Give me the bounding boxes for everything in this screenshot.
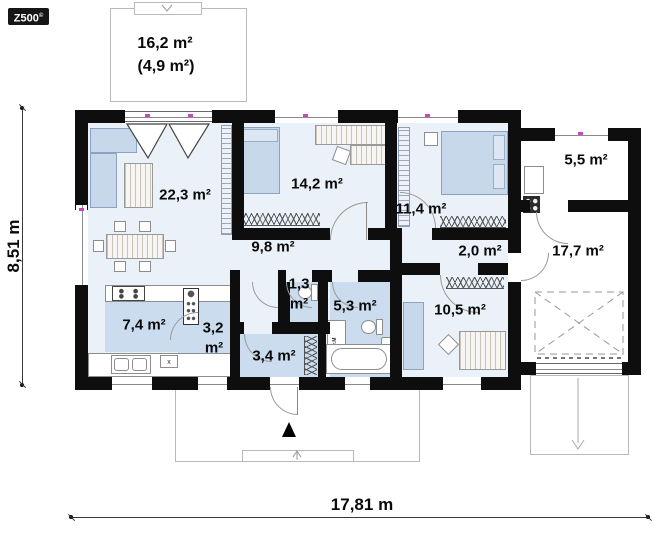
room-label-hall: 9,8 m² xyxy=(251,239,294,256)
driveway-outline xyxy=(530,375,629,455)
room-label-bathroom: 5,3 m² xyxy=(333,298,376,315)
pillow xyxy=(241,129,278,142)
room-label-bedroom2: 11,4 m² xyxy=(396,201,447,218)
door-leaf xyxy=(297,387,298,415)
wall xyxy=(272,322,330,334)
terrace-area-secondary-label: (4,9 m²) xyxy=(138,58,195,76)
dining-table xyxy=(106,234,164,259)
chair xyxy=(165,240,176,252)
wall xyxy=(390,240,402,377)
wardrobe-office xyxy=(403,302,424,370)
terrace-door-threshold xyxy=(125,111,212,122)
window xyxy=(443,378,481,389)
nightstand xyxy=(424,132,438,146)
sofa-side xyxy=(90,153,117,208)
wall xyxy=(240,322,244,334)
toilet-tank-bath xyxy=(376,319,383,335)
wall xyxy=(358,270,402,282)
dimension-line-horizontal xyxy=(71,517,650,518)
wall xyxy=(370,377,443,390)
logo-text: Z500 xyxy=(14,13,39,25)
desk-1-return xyxy=(350,145,386,165)
width-dimension-label: 17,81 m xyxy=(331,495,393,515)
pillow xyxy=(493,135,505,160)
garage-door xyxy=(536,363,622,374)
kitchen-box-label: x xyxy=(167,359,171,366)
window-tick xyxy=(425,114,430,117)
wall xyxy=(478,263,508,275)
window-tick xyxy=(188,114,193,117)
desk-1 xyxy=(315,125,386,145)
wall xyxy=(628,141,641,375)
room-label-living: 22,3 m² xyxy=(159,187,211,204)
stove-icon xyxy=(112,286,145,301)
wall xyxy=(432,228,508,240)
z500-logo: Z500© xyxy=(8,8,49,25)
radiator xyxy=(440,216,506,228)
wall xyxy=(622,362,641,375)
wall xyxy=(508,282,521,377)
wall xyxy=(397,263,440,275)
entrance-arrow xyxy=(282,422,296,437)
wall xyxy=(299,377,345,390)
chair xyxy=(139,221,151,232)
wall xyxy=(232,123,244,228)
terrace-area-label: 16,2 m² xyxy=(137,35,192,53)
wall xyxy=(278,270,286,282)
wall xyxy=(312,270,332,282)
room-label-bedroom1: 14,2 m² xyxy=(291,176,343,193)
radiator-vestibule xyxy=(304,336,317,375)
desk-2 xyxy=(459,331,506,370)
room-label-utility: 5,5 m² xyxy=(564,152,607,169)
room-label-kitchen: 7,4 m² xyxy=(122,317,165,334)
wall xyxy=(521,128,555,141)
room-label-corridor: 2,0 m² xyxy=(458,243,501,260)
window xyxy=(345,378,370,389)
kitchen-box: x xyxy=(160,355,178,368)
chair xyxy=(114,261,126,272)
wardrobe-living xyxy=(221,125,232,235)
chair xyxy=(114,221,126,232)
wall xyxy=(227,377,270,390)
chair xyxy=(93,240,104,252)
wall xyxy=(338,110,398,123)
radiator xyxy=(240,213,320,226)
window xyxy=(76,205,87,285)
wall xyxy=(608,128,641,141)
porch-step xyxy=(242,450,354,462)
window-tick xyxy=(578,132,583,135)
room-label-vestibule: 3,4 m² xyxy=(252,348,295,365)
door-leaf xyxy=(366,202,367,240)
wall xyxy=(568,200,628,212)
logo-copyright-mark: © xyxy=(39,13,43,19)
wall xyxy=(521,200,530,212)
bathtub-inner xyxy=(331,348,387,370)
chair xyxy=(139,261,151,272)
toilet-bowl-bath xyxy=(361,320,376,334)
wall xyxy=(318,334,326,377)
coffee-table xyxy=(124,163,153,208)
sofa-top xyxy=(90,128,137,153)
window xyxy=(198,378,227,389)
wall xyxy=(212,110,275,123)
room-label-pantry-line2: m² xyxy=(205,340,223,357)
room-label-garage: 17,7 m² xyxy=(552,243,604,260)
room-label-wc-line2: m² xyxy=(290,296,308,313)
floor-garage xyxy=(521,212,628,362)
wall xyxy=(75,285,88,390)
wall xyxy=(75,110,88,210)
room-label-pantry-line1: 3,2 xyxy=(203,320,224,337)
wall xyxy=(521,362,536,375)
room-label-wc-line1: 1,3 xyxy=(289,276,310,293)
floor-plan-canvas: Z500© x xyxy=(0,0,655,534)
window-tick xyxy=(79,208,84,211)
wall xyxy=(75,377,112,390)
toilet-tank-wc xyxy=(311,284,318,301)
terrace-step xyxy=(134,2,202,15)
wall xyxy=(230,270,240,377)
height-dimension-label: 8,51 m xyxy=(4,220,24,273)
room-label-office: 10,5 m² xyxy=(434,302,486,319)
sink-basin xyxy=(114,358,129,371)
wall xyxy=(481,377,521,390)
boiler xyxy=(524,166,544,194)
window xyxy=(112,378,152,389)
window-tick xyxy=(145,114,150,117)
wall xyxy=(368,228,402,240)
window-tick xyxy=(303,114,308,117)
wall xyxy=(458,110,521,123)
pillow xyxy=(493,164,505,189)
wall xyxy=(508,123,521,253)
sink-basin xyxy=(132,358,147,371)
terrace-outline xyxy=(110,8,247,102)
wall xyxy=(152,377,198,390)
